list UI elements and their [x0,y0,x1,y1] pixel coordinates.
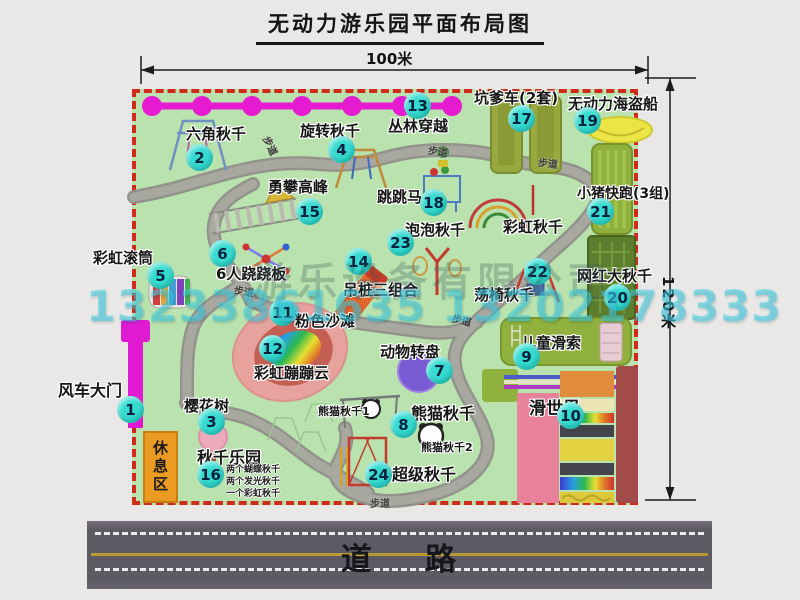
attraction-15-badge: 15 [296,198,323,225]
attraction-17-badge: 17 [508,105,535,132]
attraction-19-badge: 19 [574,107,601,134]
attraction-23-label: 泡泡秋千 [405,219,465,240]
attraction-12-label: 彩虹蹦蹦云 [254,362,329,383]
attraction-8-label: 熊猫秋千 [411,400,475,424]
attraction-9-badge: 9 [513,343,540,370]
attraction-2-label: 六角秋千 [186,123,246,144]
swing-park-note-2: 两个发光秋千 [226,476,280,488]
attraction-16-badge: 16 [197,461,224,488]
panda-swing-2-label: 熊猫秋千2 [421,439,473,455]
attraction-18-label: 跳跳马 [377,186,422,207]
swing-park-note-3: 一个彩虹秋千 [226,488,280,500]
attraction-24-label: 超级秋千 [392,461,456,485]
attraction-6-badge: 6 [209,240,236,267]
attraction-15-label: 勇攀高峰 [268,176,328,197]
attraction-12-badge: 12 [259,335,286,362]
road: 道 路 [87,521,712,589]
rainbow-swing-label: 彩虹秋千 [503,216,563,237]
attraction-1-label: 风车大门 [58,377,122,401]
walkway-label: 步道 [537,154,558,171]
attraction-18-badge: 18 [420,189,447,216]
park-layout-map: 无动力游乐园平面布局图 100米 120米 [0,0,800,600]
panda-swing-1-label: 熊猫秋千1 [318,403,370,419]
attraction-13-badge: 13 [404,92,431,119]
attraction-10-badge: 10 [557,402,584,429]
rest-area: 休息区 [143,431,178,503]
attraction-5-label: 彩虹滚筒 [93,247,153,268]
attraction-8-badge: 8 [390,411,417,438]
attraction-4-label: 旋转秋千 [300,120,360,141]
watermark-phone: 13233861635 13202178333 [86,282,782,332]
rest-area-label: 休息区 [150,440,171,494]
page-title: 无动力游乐园平面布局图 [256,8,544,45]
attraction-7-badge: 7 [426,357,453,384]
attraction-4-badge: 4 [328,136,355,163]
swing-park-note-1: 两个蝴蝶秋千 [226,464,280,476]
walkway-label: 步道 [427,142,449,160]
swing-park-notes: 两个蝴蝶秋千 两个发光秋千 一个彩虹秋千 [226,464,280,500]
attraction-21-label: 小猪快跑(3组) [577,183,670,203]
road-label: 道 路 [87,534,712,579]
attraction-2-badge: 2 [186,144,213,171]
attraction-24-badge: 24 [365,461,392,488]
walkway-label: 步道 [370,495,390,510]
attraction-1-badge: 1 [117,396,144,423]
attraction-21-badge: 21 [587,198,614,225]
width-dimension-label: 100米 [366,48,412,69]
attraction-3-badge: 3 [198,408,225,435]
